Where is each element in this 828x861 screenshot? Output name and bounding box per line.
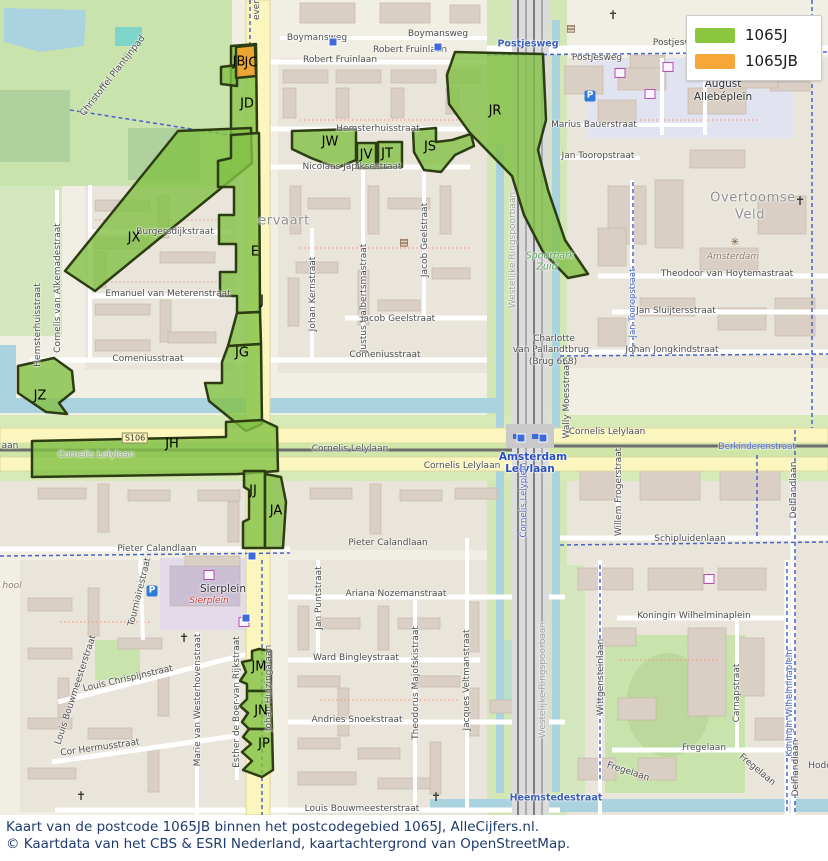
- map-caption: Kaart van de postcode 1065JB binnen het …: [0, 815, 828, 861]
- area-JB-highlight[interactable]: [236, 45, 256, 78]
- map-svg: [0, 0, 828, 815]
- area-JP: [242, 729, 273, 777]
- area-JA: [265, 474, 286, 548]
- area-JE: [218, 133, 260, 313]
- caption-line-1: Kaart van de postcode 1065JB binnen het …: [6, 819, 828, 836]
- legend-row-1065JB: 1065JB: [695, 48, 813, 74]
- area-JC: [221, 65, 237, 86]
- legend-row-1065J: 1065J: [695, 22, 813, 48]
- map-legend: 1065J 1065JB: [686, 15, 822, 81]
- legend-label: 1065JB: [745, 52, 798, 70]
- legend-swatch-orange: [695, 54, 735, 69]
- legend-swatch-green: [695, 28, 735, 43]
- area-JV: [357, 143, 376, 168]
- caption-line-2: © Kaartdata van het CBS & ESRI Nederland…: [6, 836, 828, 853]
- map-canvas[interactable]: everBoymanswegBoymanswegRobert Fruinlaan…: [0, 0, 828, 815]
- area-JT: [378, 142, 402, 168]
- legend-label: 1065J: [745, 26, 788, 44]
- postcode-map-page: everBoymanswegBoymanswegRobert Fruinlaan…: [0, 0, 828, 861]
